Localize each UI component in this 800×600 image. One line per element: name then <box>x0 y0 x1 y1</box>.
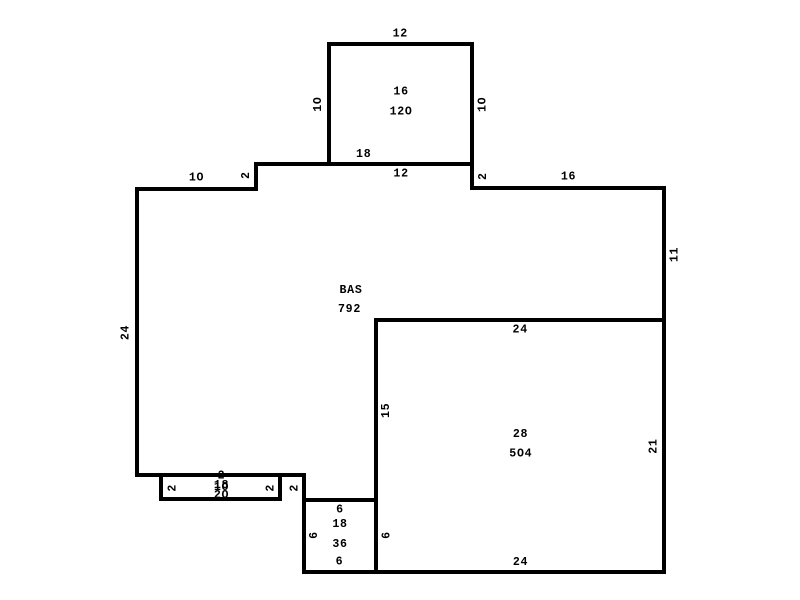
svg-text:12: 12 <box>393 28 408 41</box>
svg-text:1O: 1O <box>312 96 325 111</box>
svg-text:2: 2 <box>166 484 179 492</box>
svg-text:28: 28 <box>513 428 528 441</box>
svg-text:18: 18 <box>356 148 371 161</box>
svg-text:11: 11 <box>668 247 681 262</box>
svg-text:2: 2 <box>477 172 490 180</box>
svg-text:24: 24 <box>513 556 528 569</box>
svg-text:BAS: BAS <box>340 284 363 297</box>
svg-text:792: 792 <box>338 303 361 316</box>
svg-text:2: 2 <box>264 484 277 492</box>
svg-text:24: 24 <box>120 325 133 340</box>
svg-text:1O: 1O <box>189 172 204 185</box>
svg-text:16: 16 <box>561 171 576 184</box>
svg-text:12: 12 <box>393 168 408 181</box>
svg-text:24: 24 <box>513 324 528 337</box>
svg-text:12O: 12O <box>390 105 413 118</box>
svg-text:6: 6 <box>381 531 394 539</box>
svg-text:6: 6 <box>336 504 344 517</box>
svg-text:1O: 1O <box>477 97 490 112</box>
svg-text:21: 21 <box>648 438 661 453</box>
svg-text:18: 18 <box>332 518 347 531</box>
svg-text:36: 36 <box>332 538 347 551</box>
svg-text:15: 15 <box>380 403 393 418</box>
svg-text:6: 6 <box>308 531 321 539</box>
svg-text:6: 6 <box>336 555 344 568</box>
svg-text:5O4: 5O4 <box>509 447 532 460</box>
svg-text:2: 2 <box>288 484 301 492</box>
svg-text:2: 2 <box>240 171 253 179</box>
svg-text:16: 16 <box>393 86 408 99</box>
